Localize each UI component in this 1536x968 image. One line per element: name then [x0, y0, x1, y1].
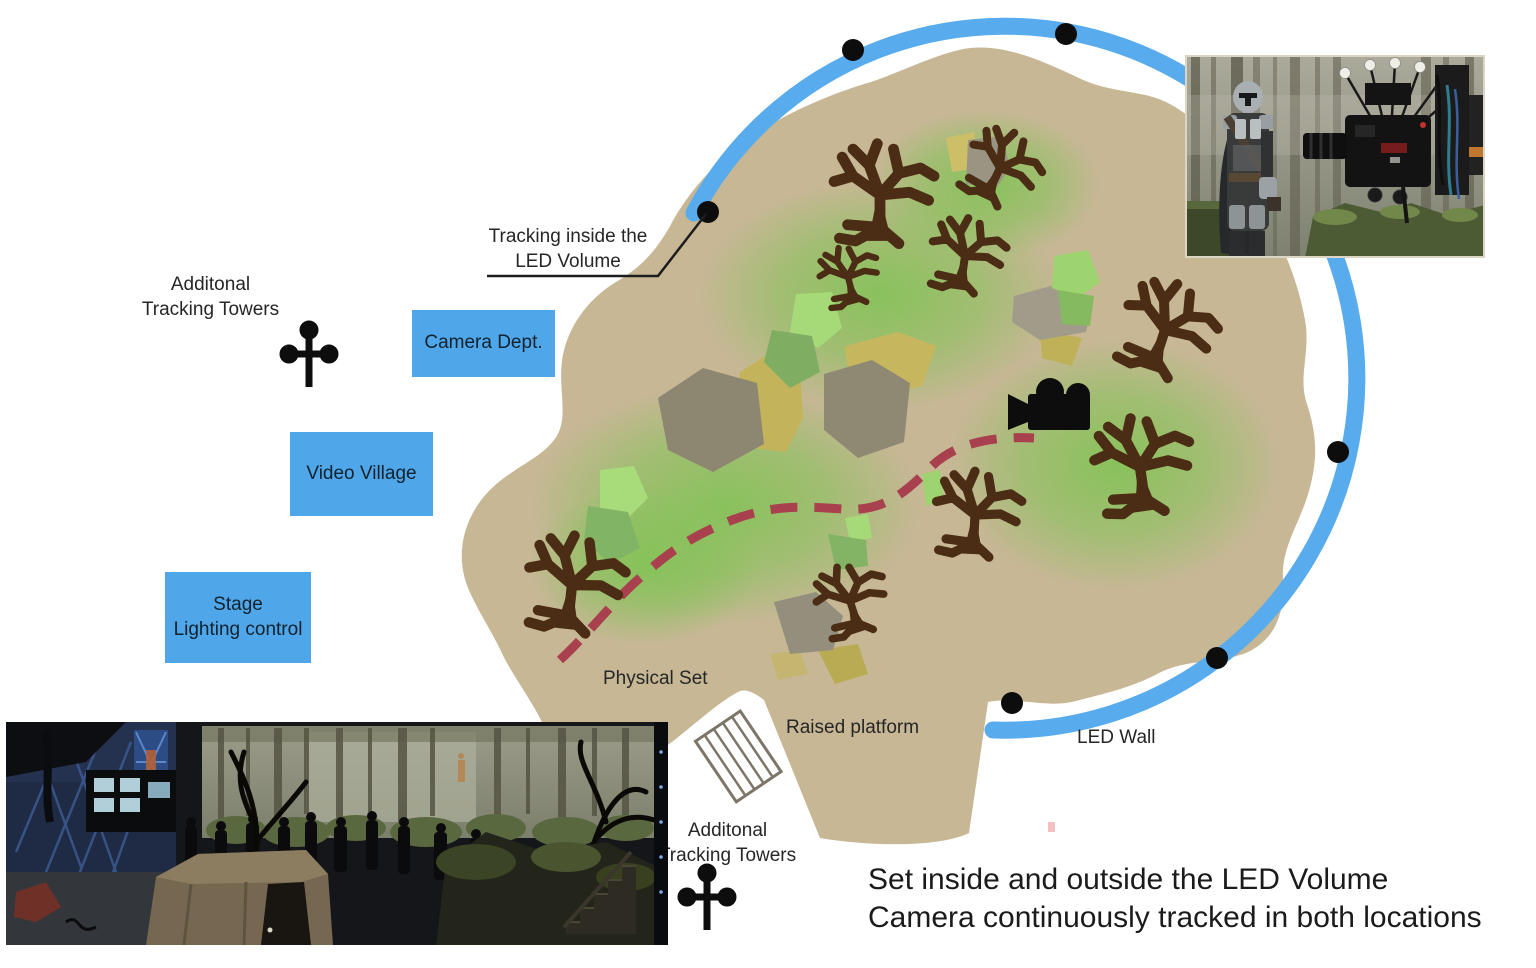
- label-line: LED Volume: [462, 249, 674, 274]
- video-village-label: Video Village: [306, 462, 416, 487]
- tent-opening: [261, 882, 311, 945]
- video-village-monitors: [86, 770, 176, 832]
- raised-platform-hatch-icon: [695, 711, 781, 802]
- caption-line-2: Camera continuously tracked in both loca…: [868, 899, 1482, 937]
- led-volume-stage-set-photo: [6, 722, 668, 945]
- tracking-marker-dot: [1327, 441, 1349, 463]
- caption: Set inside and outside the LED Volume Ca…: [868, 861, 1482, 937]
- actor-on-screen: [458, 760, 465, 782]
- orange-tag: [1469, 147, 1483, 157]
- label-line: Tracking inside the: [462, 224, 674, 249]
- caption-line-1: Set inside and outside the LED Volume: [868, 861, 1482, 899]
- tally-light: [1420, 122, 1426, 128]
- tracking-marker-dot: [1001, 692, 1023, 714]
- label-line: Additonal: [118, 272, 303, 297]
- stage-right-edge: [654, 722, 668, 945]
- video-village-box: Video Village: [290, 432, 433, 516]
- label-raised-platform: Raised platform: [786, 715, 919, 740]
- tracking-tower-icon: [280, 321, 338, 387]
- stage-lighting-box: Stage Lighting control: [165, 572, 311, 663]
- label-led-wall: LED Wall: [1077, 725, 1155, 750]
- label-tracking-inside: Tracking inside the LED Volume: [462, 224, 674, 274]
- stray-mark: [1048, 822, 1055, 832]
- led-volume-diagram: Additonal Tracking Towers Tracking insid…: [0, 0, 1536, 968]
- camera-dept-label: Camera Dept.: [424, 331, 542, 356]
- tracking-tower-icon: [678, 864, 736, 930]
- label-physical-set: Physical Set: [603, 666, 708, 691]
- tracking-marker-dot: [1055, 23, 1077, 45]
- stage-label-line: Stage: [213, 593, 263, 618]
- tracking-marker-dot: [842, 39, 864, 61]
- behind-the-scenes-mandalorian-camera-photo: [1185, 55, 1485, 258]
- tracking-marker-dot: [1206, 647, 1228, 669]
- label-additional-towers-top: Additonal Tracking Towers: [118, 272, 303, 322]
- stage-label-line: Lighting control: [174, 618, 303, 643]
- camera-dept-box: Camera Dept.: [412, 310, 555, 377]
- label-line: Tracking Towers: [118, 297, 303, 322]
